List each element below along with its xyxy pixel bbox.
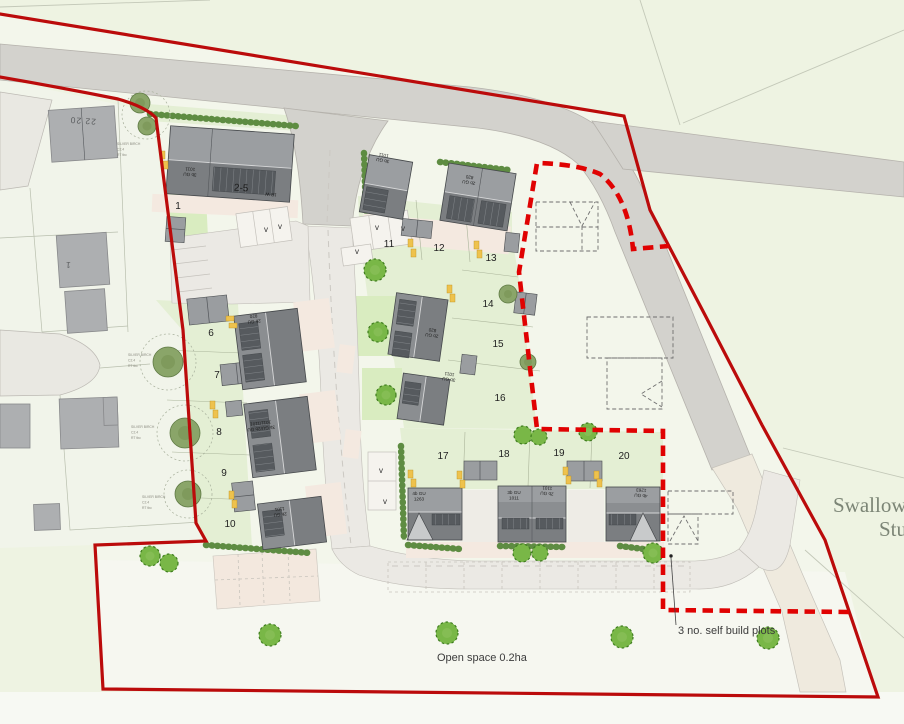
place-name-line1: Swallow F bbox=[833, 493, 904, 517]
site-plan-page: 167891011121314151617181920 vvvvvvv 3b G… bbox=[0, 0, 904, 724]
visitor-bay-label: v bbox=[379, 466, 383, 475]
driveway bbox=[568, 490, 604, 542]
building-plot-20 bbox=[606, 487, 660, 541]
existing-building-1 bbox=[56, 232, 110, 287]
existing-house-number: 22 20 bbox=[69, 115, 96, 127]
plot-number-1: 1 bbox=[175, 201, 181, 212]
plot-number-17: 17 bbox=[437, 451, 449, 462]
plot-number-16: 16 bbox=[494, 393, 506, 404]
unit-type-label: 1B W bbox=[264, 192, 276, 198]
plot-number-9: 9 bbox=[221, 468, 227, 479]
unit-type-label: 2-5 bbox=[234, 183, 249, 195]
visitor-bay-label: v bbox=[264, 225, 268, 234]
plot-number-6: 6 bbox=[208, 328, 214, 339]
plot-number-14: 14 bbox=[482, 299, 494, 310]
parking-bays-visitor-south bbox=[368, 452, 396, 510]
existing-building bbox=[34, 504, 61, 531]
building-plot-10 bbox=[257, 496, 326, 549]
building-plots-12-13 bbox=[440, 163, 516, 231]
plot-number-8: 8 bbox=[216, 427, 222, 438]
visitor-bay-label: v bbox=[383, 497, 387, 506]
existing-house-number: 1 bbox=[65, 260, 71, 270]
building-terrace-2-5 bbox=[166, 126, 294, 202]
plot-number-15: 15 bbox=[492, 339, 504, 350]
building-plots-8-9 bbox=[244, 396, 317, 477]
place-name-line2: Stu bbox=[879, 517, 904, 541]
parking-court-southwest bbox=[213, 549, 320, 609]
plot-number-7: 7 bbox=[214, 370, 220, 381]
site-plan-drawing: 167891011121314151617181920 vvvvvvv 3b G… bbox=[0, 0, 904, 724]
unit-type-label: 4b GU1263 bbox=[412, 491, 425, 501]
visitor-bay-label: v bbox=[375, 223, 379, 232]
building-plots-14-15 bbox=[388, 293, 448, 363]
plot-number-10: 10 bbox=[224, 519, 236, 530]
driveway bbox=[460, 490, 498, 542]
plot-number-20: 20 bbox=[618, 451, 630, 462]
visitor-bay-label: v bbox=[278, 222, 282, 231]
plot-number-18: 18 bbox=[498, 449, 510, 460]
existing-building bbox=[0, 404, 30, 448]
plot-number-19: 19 bbox=[553, 448, 565, 459]
visitor-bay-label: v bbox=[401, 224, 405, 233]
building-plots-6-7 bbox=[234, 308, 307, 389]
visitor-bay-label: v bbox=[355, 247, 359, 256]
open-space-label: Open space 0.2ha bbox=[437, 652, 528, 664]
plot-number-11: 11 bbox=[384, 239, 395, 250]
plot-number-13: 13 bbox=[485, 253, 497, 264]
existing-building bbox=[65, 289, 108, 334]
plot-number-12: 12 bbox=[433, 243, 445, 254]
unit-type-label: 3b GU1011 bbox=[507, 490, 520, 500]
self-build-plots-label: 3 no. self build plots bbox=[678, 625, 776, 637]
